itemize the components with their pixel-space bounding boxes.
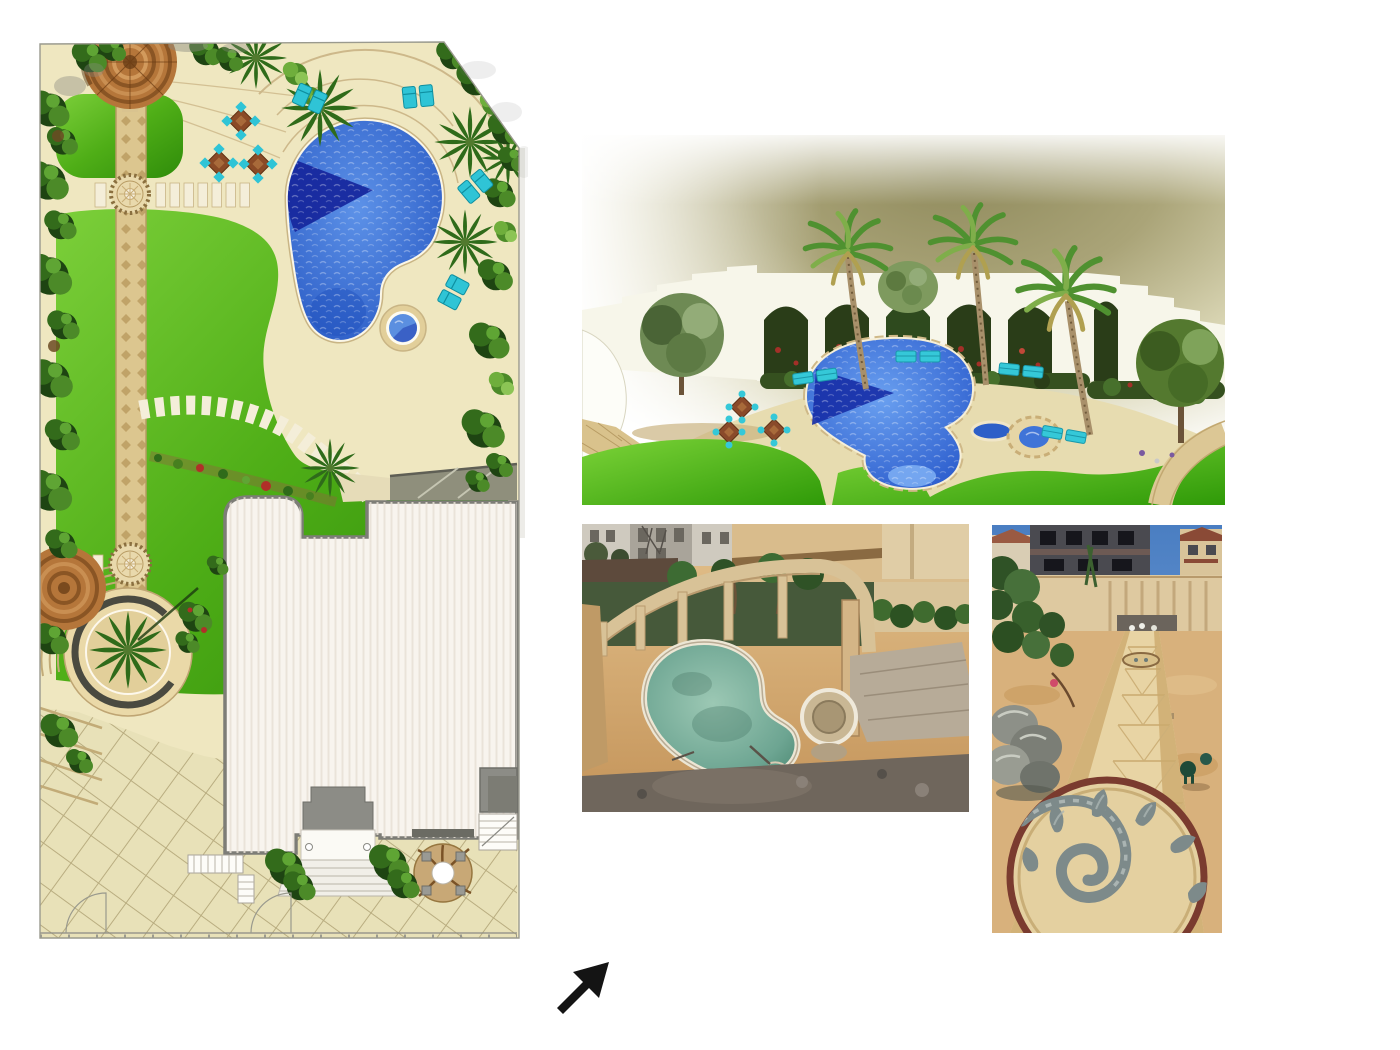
pink-object [1050, 679, 1058, 687]
construction-photo-graphic [582, 524, 969, 812]
concrete-slab [850, 642, 969, 742]
path-medallion-2 [110, 544, 150, 584]
plan-content [38, 40, 528, 945]
spa [380, 305, 426, 351]
plan-edge-shadow [519, 148, 525, 538]
roof-annex [479, 768, 517, 850]
gate-recess [1117, 615, 1177, 631]
render-graphic [582, 135, 1225, 505]
presentation-page [0, 0, 1400, 1050]
walkway-construction-photo[interactable] [992, 525, 1222, 933]
swimming-pool [288, 121, 442, 351]
render-top-fade [582, 135, 1225, 205]
site-plan-image[interactable] [38, 40, 528, 945]
pool-construction-photo[interactable] [582, 524, 969, 812]
northeast-arrow-icon [543, 938, 623, 1018]
site-plan-graphic [38, 40, 528, 945]
path-medallion-1 [111, 175, 149, 213]
walkway-photo-graphic [992, 525, 1222, 933]
small-path-medallion [1123, 653, 1159, 667]
pool-court-3d-render-image[interactable] [582, 135, 1225, 505]
northeast-arrow-graphic [543, 938, 623, 1018]
